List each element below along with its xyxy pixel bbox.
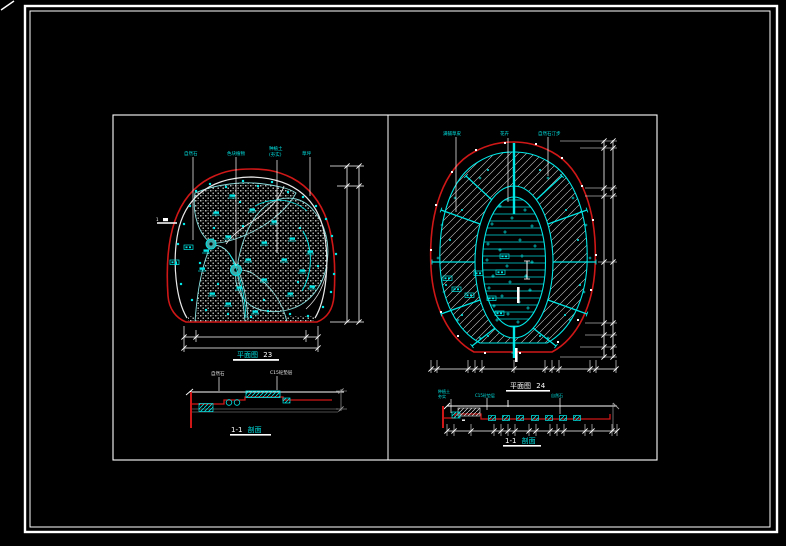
vertex-dot (484, 352, 486, 354)
vertex-dot (430, 249, 432, 251)
boxed-label-glyph (500, 312, 502, 314)
boxed-label-glyph (476, 272, 478, 274)
mini-label (300, 269, 306, 271)
leader-label: 花卉 (500, 130, 509, 137)
section-title-number: 1-1 (505, 437, 516, 445)
left-plan-planting-shapes (188, 183, 328, 322)
left-section-view: 自然石 C15砼垫层 1-1 剖面 (186, 369, 347, 436)
leader-label: 自然石 (184, 150, 198, 157)
plant-dot (333, 273, 335, 275)
plant-dot (199, 262, 201, 264)
mini-label (253, 310, 259, 312)
leader-label: 夯实 (438, 393, 446, 399)
leader-label: (夯实) (269, 151, 282, 158)
section-flag (163, 218, 168, 221)
right-section-view: 种植土 夯实 C15砼垫层 自然石 1-1 剖面 (438, 388, 620, 447)
paver-block (560, 416, 567, 421)
view-title-text: 平面图 (510, 382, 531, 390)
mini-label (200, 267, 206, 269)
plant-dot (213, 227, 215, 229)
plant-dot (267, 310, 269, 312)
section-title-text: 剖面 (522, 436, 536, 445)
boxed-label-glyph (501, 271, 503, 273)
paver-block (517, 416, 524, 421)
right-plan-title: 平面图 24 (506, 382, 550, 392)
paving-band (246, 391, 280, 398)
ring-dot (461, 314, 463, 316)
section-title-text: 剖面 (248, 425, 262, 434)
sheet-border (1, 1, 777, 532)
title-underline (506, 390, 550, 392)
mini-label (272, 220, 278, 222)
sheet-outer-border (25, 6, 777, 532)
ring-dot (577, 239, 579, 241)
mini-label (262, 278, 268, 280)
cad-sheet-canvas: 自然石 色块植物 种植土 (夯实) 草坪 1 平面图 23 (0, 0, 786, 546)
plant-dot (271, 181, 273, 183)
mini-label (214, 211, 220, 213)
boxed-label-glyph (445, 277, 447, 279)
vertex-dot (519, 352, 521, 354)
left-plan-boxed-labels (170, 245, 193, 265)
leader-label: 种植土 (269, 145, 283, 152)
title-underline (233, 359, 279, 361)
leader-label: C15砼垫层 (270, 369, 293, 376)
plant-dot (217, 283, 219, 285)
leader-label: 草坪 (302, 150, 311, 157)
plant-dot (177, 243, 179, 245)
vertex-dot (451, 171, 453, 173)
section-number: 1 (156, 217, 159, 222)
vertex-dot (577, 319, 579, 321)
boxed-label-glyph (489, 297, 491, 299)
plant-dot (263, 299, 265, 301)
plant-dot (191, 299, 193, 301)
ring-dot (487, 335, 489, 337)
boxed-label-glyph (457, 288, 459, 290)
plant-dot (242, 180, 244, 182)
mini-label (226, 302, 232, 304)
ring-dot (539, 335, 541, 337)
plant-dot (299, 227, 301, 229)
mini-label (282, 258, 288, 260)
ring-dot (579, 284, 581, 286)
left-plan-view: 自然石 色块植物 种植土 (夯实) 草坪 1 平面图 23 (156, 145, 364, 361)
vertex-dot (595, 254, 597, 256)
plant-dot (180, 283, 182, 285)
plant-dot (225, 186, 227, 188)
plant-dot (335, 253, 337, 255)
view-title: 1-1 剖面 (505, 436, 536, 445)
mini-label (237, 286, 243, 288)
plant-dot (317, 265, 319, 267)
section-profile-red (191, 397, 332, 404)
tiny-mark (462, 420, 465, 421)
stone-block-white (458, 408, 480, 416)
leader-label: 自然石 (551, 392, 563, 398)
mini-label (310, 285, 316, 287)
plant-dot (239, 201, 241, 203)
vertex-dot (504, 142, 506, 144)
mini-label (226, 235, 232, 237)
ring-dot (487, 169, 489, 171)
vertex-dot (457, 335, 459, 337)
mini-label (210, 292, 216, 294)
mini-label (288, 292, 294, 294)
mini-label (246, 258, 252, 260)
leader-label: C15砼垫层 (475, 392, 495, 398)
paver-block (503, 416, 510, 421)
vertex-dot (475, 149, 477, 151)
mini-label (308, 250, 314, 252)
boxed-label-glyph (505, 255, 507, 257)
section-title-number: 1-1 (231, 426, 242, 434)
mini-label (230, 194, 236, 196)
boxed-label-glyph (467, 294, 469, 296)
white-marker-bar (517, 287, 520, 303)
plant-dot (315, 205, 317, 207)
ring-dot (445, 284, 447, 286)
vertex-dot (435, 204, 437, 206)
boxed-label-glyph (479, 272, 481, 274)
leader-label: 自然石 (211, 370, 225, 377)
vertex-dot (590, 289, 592, 291)
boxed-label-glyph (454, 288, 456, 290)
boxed-label-glyph (189, 246, 191, 248)
vertex-dot (535, 143, 537, 145)
corner-tick (1, 1, 14, 10)
ring-dot (564, 314, 566, 316)
stone-block (452, 412, 460, 418)
boxed-label-glyph (175, 261, 177, 263)
paver-block (489, 416, 496, 421)
feature-node-center (209, 242, 212, 245)
plant-dot (209, 183, 211, 185)
plant-dot (302, 196, 304, 198)
plant-dot (257, 185, 259, 187)
view-title-text: 平面图 (237, 351, 258, 359)
left-plan-title: 平面图 23 (233, 351, 279, 361)
leader-label: 色块植物 (227, 150, 245, 157)
boxed-label (170, 260, 179, 265)
boxed-label-glyph (497, 312, 499, 314)
plant-dot (183, 223, 185, 225)
view-title-number: 24 (536, 382, 545, 390)
left-section-title: 1-1 剖面 (230, 425, 271, 436)
boxed-label-glyph (498, 271, 500, 273)
paver-block (546, 416, 553, 421)
white-marker-bar (515, 348, 518, 362)
mini-label (262, 241, 268, 243)
boxed-label-glyph (172, 261, 174, 263)
title-underline (230, 434, 271, 436)
leader-label: 自然石汀步 (538, 130, 561, 137)
stone-block (283, 398, 290, 403)
plant-dot (189, 205, 191, 207)
vertex-dot (557, 341, 559, 343)
plant-dot (287, 191, 289, 193)
sheet-inner-border (30, 11, 770, 527)
plant-dot (227, 313, 229, 315)
paver-block (574, 416, 581, 421)
view-title: 1-1 剖面 (231, 425, 262, 434)
boxed-label (184, 245, 193, 250)
ring-dot (461, 209, 463, 211)
view-title: 平面图 23 (237, 351, 272, 359)
plant-dot (195, 190, 197, 192)
vertex-dot (581, 185, 583, 187)
boxed-label-glyph (448, 277, 450, 279)
right-plan-view: 满铺草皮 花卉 自然石汀步 平面图 24 (428, 130, 618, 392)
mini-label (290, 237, 296, 239)
plant-dot (250, 316, 252, 318)
boxed-label-glyph (502, 255, 504, 257)
vertex-dot (440, 311, 442, 313)
mini-label (250, 208, 256, 210)
title-underline (503, 445, 541, 447)
stone-block (199, 404, 213, 412)
right-section-title: 1-1 剖面 (503, 436, 541, 447)
paver-block (532, 416, 539, 421)
plant-dot (322, 306, 324, 308)
ring-dot (539, 169, 541, 171)
ring-dot (449, 239, 451, 241)
plant-dot (325, 218, 327, 220)
plant-dot (331, 235, 333, 237)
leader-label: 满铺草皮 (443, 130, 461, 137)
plant-dot (330, 291, 332, 293)
right-section-dimensions (444, 424, 619, 436)
boxed-label-glyph (470, 294, 472, 296)
plant-dot (205, 309, 207, 311)
vertex-dot (561, 157, 563, 159)
plant-dot (307, 315, 309, 317)
vertex-dot (592, 219, 594, 221)
view-title-number: 23 (263, 351, 272, 359)
mini-label (204, 249, 210, 251)
plant-dot (289, 313, 291, 315)
ring-dot (565, 209, 567, 211)
boxed-label-glyph (492, 297, 494, 299)
view-title: 平面图 24 (510, 382, 546, 390)
boxed-label-glyph (186, 246, 188, 248)
plant-dot (297, 281, 299, 283)
plant-dot (242, 225, 244, 227)
